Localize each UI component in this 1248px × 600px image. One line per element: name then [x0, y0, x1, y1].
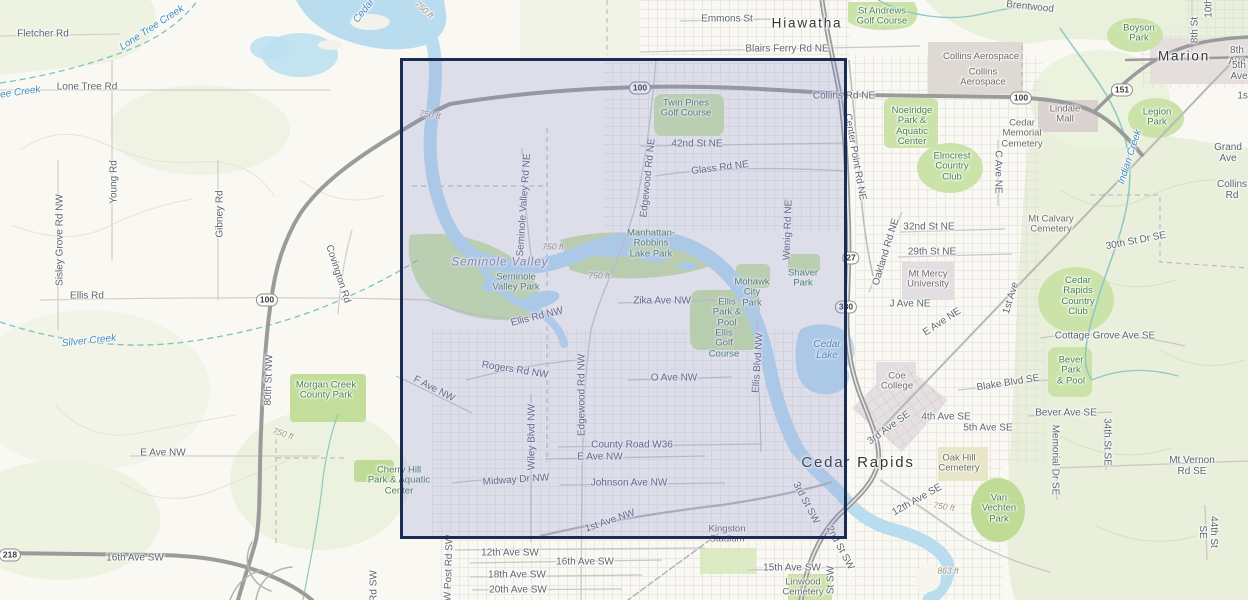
map-label-cedar-rapids-country-club: Cedar Rapids Country Club [1061, 276, 1094, 318]
map-label-750-ft: 750 ft [933, 501, 955, 513]
map-label-8th-ave: 8th Ave [1228, 45, 1245, 67]
map-label-32nd-st-ne: 32nd St NE [903, 222, 954, 233]
map-label-5th-ave-se: 5th Ave SE [963, 423, 1012, 434]
map-label-collins-aerospace: Collins Aerospace [960, 68, 1005, 89]
map-label-5th-ave: 5th Ave [1230, 60, 1247, 82]
map-label-mt-mercy-university: Mt Mercy University [907, 270, 949, 291]
map-label-oakland-rd-ne: Oakland Rd NE [871, 217, 902, 287]
map-label-memorial-dr-se: Memorial Dr SE [1050, 425, 1061, 496]
map-label-18th-ave-sw: 18th Ave SW [488, 570, 546, 581]
map-label-e-ave-nw: E Ave NW [140, 448, 185, 459]
selection-rectangle[interactable] [400, 58, 847, 539]
map-label-gibney-rd: Gibney Rd [215, 190, 226, 237]
map-label-marion: Marion [1158, 50, 1210, 65]
map-label-j-ave-ne: J Ave NE [890, 299, 931, 310]
route-shield-151: 151 [1111, 84, 1133, 97]
map-label-cedar-memorial-cemetery: Cedar Memorial Cemetery [1001, 118, 1042, 149]
map-label-blake-blvd-se: Blake Blvd SE [976, 373, 1040, 394]
map-label-1st-ave: 1st Ave [1001, 281, 1021, 315]
map-label-8th-st: 8th St [1190, 17, 1201, 43]
map-label-e-ave-ne: E Ave NE [921, 306, 963, 338]
map-label-lindale-mall: Lindale Mall [1050, 105, 1081, 126]
route-shield-100: 100 [1010, 92, 1032, 105]
map-label-lone-tree-creek: Lone Tree Creek [118, 3, 186, 53]
map-label-mt-vernon-rd-se: Mt Vernon Rd SE [1164, 455, 1220, 477]
map-label-brentwood: Brentwood [1006, 0, 1055, 15]
map-label-blairs-ferry-rd-ne: Blairs Ferry Rd NE [745, 44, 828, 55]
map-label-863-ft: 863 ft [937, 566, 958, 575]
route-shield-218: 218 [0, 549, 21, 562]
map-label-elmcrest-country-club: Elmcrest Country Club [934, 151, 971, 182]
map-label-emmons-st: Emmons St [701, 14, 753, 25]
map-label-silver-creek: Silver Creek [61, 333, 116, 350]
map-label-750-ft: 750 ft [413, 0, 435, 21]
map-label-van-vechten-park: Van Vechten Park [982, 493, 1016, 524]
map-label-sisley-grove-rd-nw: Sisley Grove Rd NW [55, 194, 66, 286]
map-label-lone-tree-rd: Lone Tree Rd [57, 82, 118, 93]
map-label-linwood-cemetery: Linwood Cemetery [782, 578, 823, 599]
map-label-st-andrews-golf-course: St Andrews Golf Course [857, 7, 908, 28]
map-label-coe-college: Coe College [881, 372, 913, 393]
map-label-hiawatha: Hiawatha [772, 17, 843, 32]
map-label-cottage-grove-ave-se: Cottage Grove Ave SE [1055, 331, 1155, 342]
map-label-16th-ave-sw: 16th Ave SW [106, 553, 164, 564]
map-label-15th-ave-sw: 15th Ave SW [763, 563, 821, 574]
map-label-boyson-park: Boyson Park [1123, 24, 1155, 45]
map-label-grand-ave: Grand Ave [1214, 142, 1242, 164]
map-label-20th-ave-sw: 20th Ave SW [489, 585, 547, 596]
map-label-44th-st-se: 44th St SE [1197, 512, 1219, 552]
map-label-30th-st-dr-se: 30th St Dr SE [1105, 230, 1167, 252]
map-label-c-ave-ne: C Ave NE [993, 150, 1004, 193]
map-label-st-sw: St SW [826, 566, 837, 594]
map-label-covington-rd: Covington Rd [323, 243, 352, 304]
map-label-indian-creek: Indian Creek [1116, 128, 1144, 185]
map-label-80th-st-nw: 80th St NW [263, 354, 276, 405]
map-label-12th-ave-sw: 12th Ave SW [481, 548, 539, 559]
map-label-young-rd: Young Rd [109, 160, 120, 204]
map-viewport[interactable]: HiawathaMarionCedar RapidsFletcher RdLon… [0, 0, 1248, 600]
map-label-4th-ave-se: 4th Ave SE [921, 412, 970, 423]
map-label-bever-park-pool: Bever Park & Pool [1057, 355, 1085, 386]
map-label-collins-rd: Collins Rd [1217, 179, 1247, 201]
map-label-ellis-rd: Ellis Rd [70, 291, 104, 302]
map-label-1st: 1st [1237, 91, 1248, 102]
map-label-29th-st-ne: 29th St NE [908, 247, 956, 258]
map-label-morgan-creek-county-park: Morgan Creek County Park [296, 381, 356, 402]
map-label-16th-ave-sw: 16th Ave SW [556, 557, 614, 568]
map-label-fletcher-rd: Fletcher Rd [17, 29, 69, 40]
map-label-12th-ave-se: 12th Ave SE [890, 482, 943, 518]
map-label-34th-st-se: 34th St SE [1102, 418, 1113, 466]
map-label-w-post-rd-sw: W Post Rd SW [442, 534, 455, 600]
map-label-750-ft: 750 ft [271, 426, 294, 441]
map-label-tree-creek: Tree Creek [0, 84, 41, 102]
map-label-3rd-ave-se: 3rd Ave SE [866, 409, 913, 447]
map-label-legion-park: Legion Park [1143, 108, 1172, 129]
map-label-rd-sw: Rd SW [369, 570, 380, 600]
map-label-mt-calvary-cemetery: Mt Calvary Cemetery [1028, 215, 1073, 236]
map-label-bever-ave-se: Bever Ave SE [1035, 408, 1097, 419]
map-label-oak-hill-cemetery: Oak Hill Cemetery [938, 454, 979, 475]
map-label-collins-aerospace: Collins Aerospace [943, 52, 1019, 62]
map-label-noelridge-park-aquatic-center: Noelridge Park & Aquatic Center [892, 106, 933, 148]
route-shield-100: 100 [256, 294, 278, 307]
map-label-cedar: Cedar [351, 0, 376, 25]
map-label-10th: 10th [1204, 0, 1215, 18]
